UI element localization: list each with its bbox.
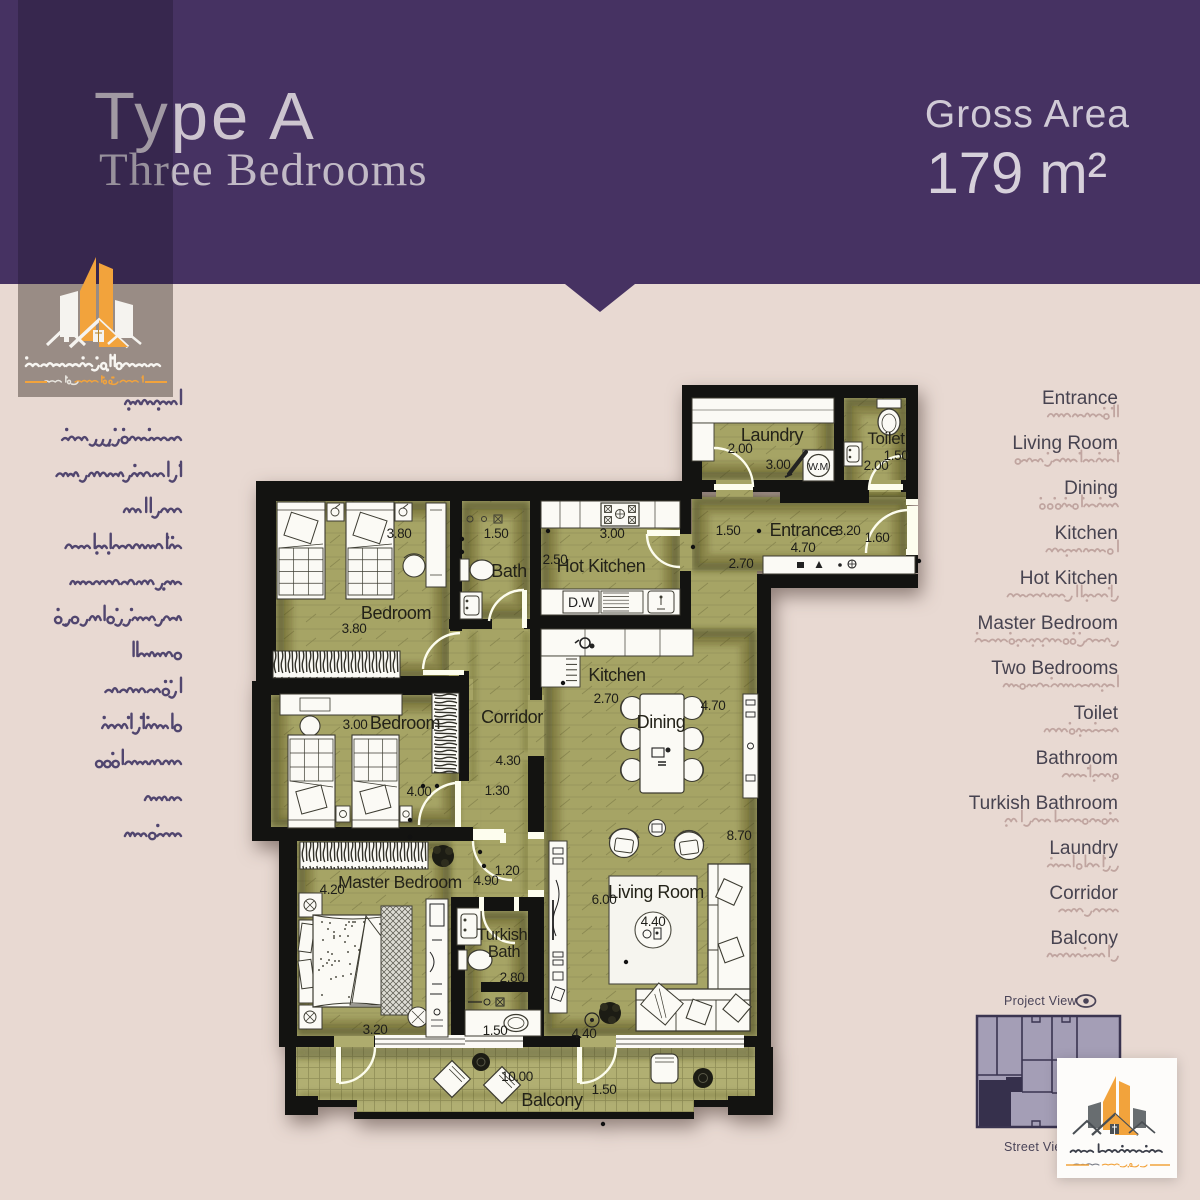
svg-text:2.50: 2.50 [543,552,568,567]
svg-text:10.00: 10.00 [501,1069,533,1084]
svg-text:1.20: 1.20 [495,863,520,878]
svg-text:4.30: 4.30 [496,753,521,768]
svg-text:1.50: 1.50 [483,1023,508,1038]
svg-text:Turkish: Turkish [477,926,528,944]
svg-text:3.00: 3.00 [766,457,791,472]
svg-text:Master Bedroom: Master Bedroom [338,872,462,892]
svg-text:D.W: D.W [568,594,595,610]
svg-text:3.80: 3.80 [387,526,412,541]
svg-text:1.30: 1.30 [485,783,510,798]
svg-text:Dining: Dining [637,712,686,732]
svg-text:3.20: 3.20 [836,523,861,538]
svg-text:3.00: 3.00 [600,526,625,541]
svg-text:4.70: 4.70 [791,540,816,555]
svg-text:Bedroom: Bedroom [370,713,440,733]
svg-text:W.M: W.M [808,461,828,473]
svg-text:4.20: 4.20 [320,882,345,897]
svg-text:2.00: 2.00 [728,441,753,456]
svg-text:1.50: 1.50 [484,526,509,541]
svg-text:2.00: 2.00 [864,458,889,473]
svg-text:4.00: 4.00 [407,784,432,799]
svg-text:8.70: 8.70 [727,828,752,843]
svg-text:Balcony: Balcony [521,1090,583,1110]
svg-text:3.00: 3.00 [343,717,368,732]
svg-text:6.00: 6.00 [592,892,617,907]
svg-text:3.20: 3.20 [363,1022,388,1037]
svg-text:Bedroom: Bedroom [361,603,431,623]
svg-text:4.40: 4.40 [572,1026,597,1041]
svg-text:1.50: 1.50 [592,1082,617,1097]
svg-text:2.80: 2.80 [500,970,525,985]
svg-text:4.90: 4.90 [474,873,499,888]
svg-text:Corridor: Corridor [481,707,543,727]
svg-text:Toilet: Toilet [867,429,905,448]
svg-text:3.80: 3.80 [342,621,367,636]
svg-text:Bath: Bath [491,561,526,581]
svg-text:Living Room: Living Room [608,882,704,902]
svg-text:Bath: Bath [488,943,521,961]
svg-text:4.40: 4.40 [641,914,666,929]
svg-text:Hot Kitchen: Hot Kitchen [557,556,646,576]
svg-text:1.60: 1.60 [865,530,890,545]
svg-text:2.70: 2.70 [729,556,754,571]
svg-text:1.50: 1.50 [716,523,741,538]
svg-text:Entrance: Entrance [770,520,839,540]
svg-text:2.70: 2.70 [594,691,619,706]
svg-text:Kitchen: Kitchen [588,665,645,685]
svg-text:4.70: 4.70 [701,698,726,713]
